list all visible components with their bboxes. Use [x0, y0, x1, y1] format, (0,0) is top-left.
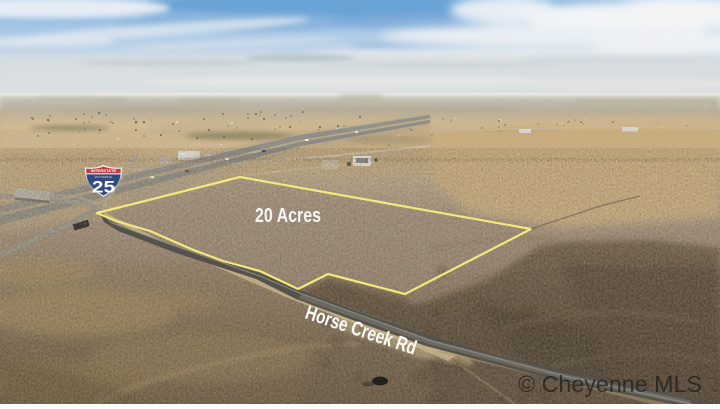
svg-text:INTERSTATE: INTERSTATE	[91, 169, 117, 173]
svg-text:© Cheyenne MLS: © Cheyenne MLS	[518, 371, 702, 397]
svg-text:25: 25	[92, 177, 115, 196]
svg-text:20 Acres: 20 Acres	[255, 205, 321, 227]
